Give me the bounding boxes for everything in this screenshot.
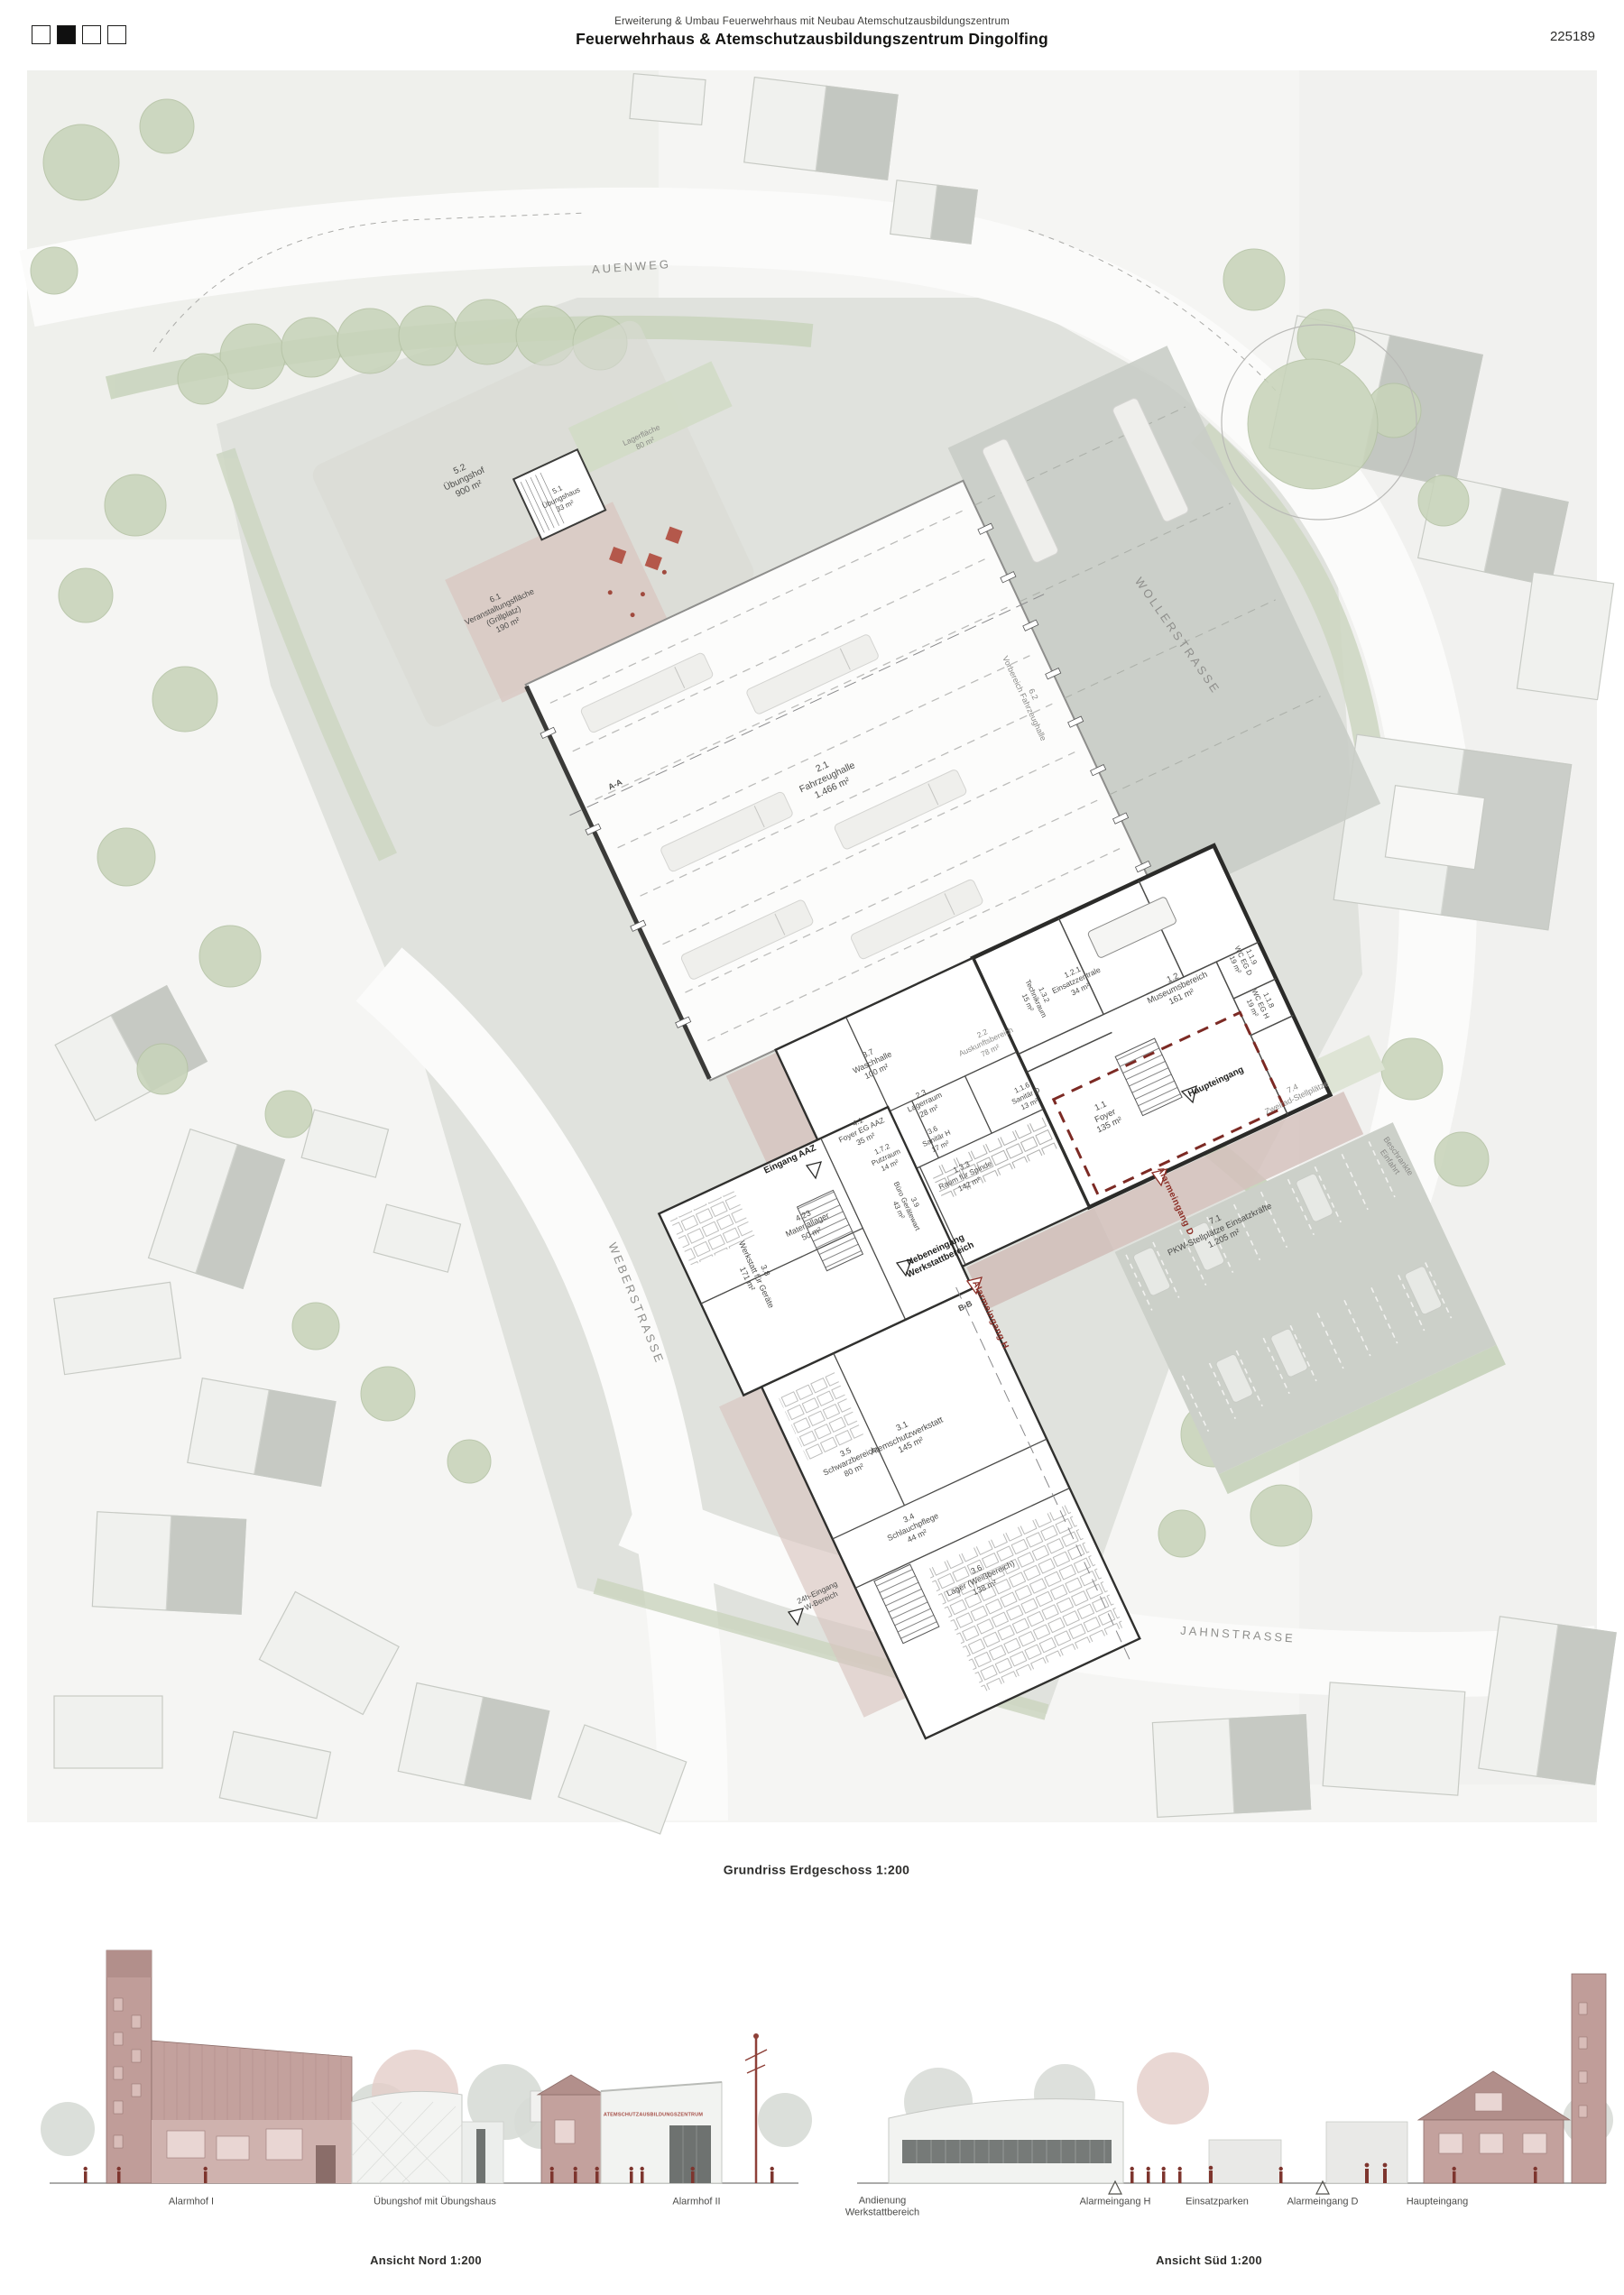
elevation-north: [41, 1950, 812, 2183]
project-title: Feuerwehrhaus & Atemschutzausbildungszen…: [0, 30, 1624, 49]
project-subtitle: Erweiterung & Umbau Feuerwehrhaus mit Ne…: [0, 16, 1624, 27]
site-plan-graphic: [0, 0, 1624, 2295]
elevation-south: [857, 1974, 1613, 2194]
header: Erweiterung & Umbau Feuerwehrhaus mit Ne…: [0, 16, 1624, 49]
entry-number: 225189: [1550, 29, 1595, 44]
competition-board: Erweiterung & Umbau Feuerwehrhaus mit Ne…: [0, 0, 1624, 2295]
